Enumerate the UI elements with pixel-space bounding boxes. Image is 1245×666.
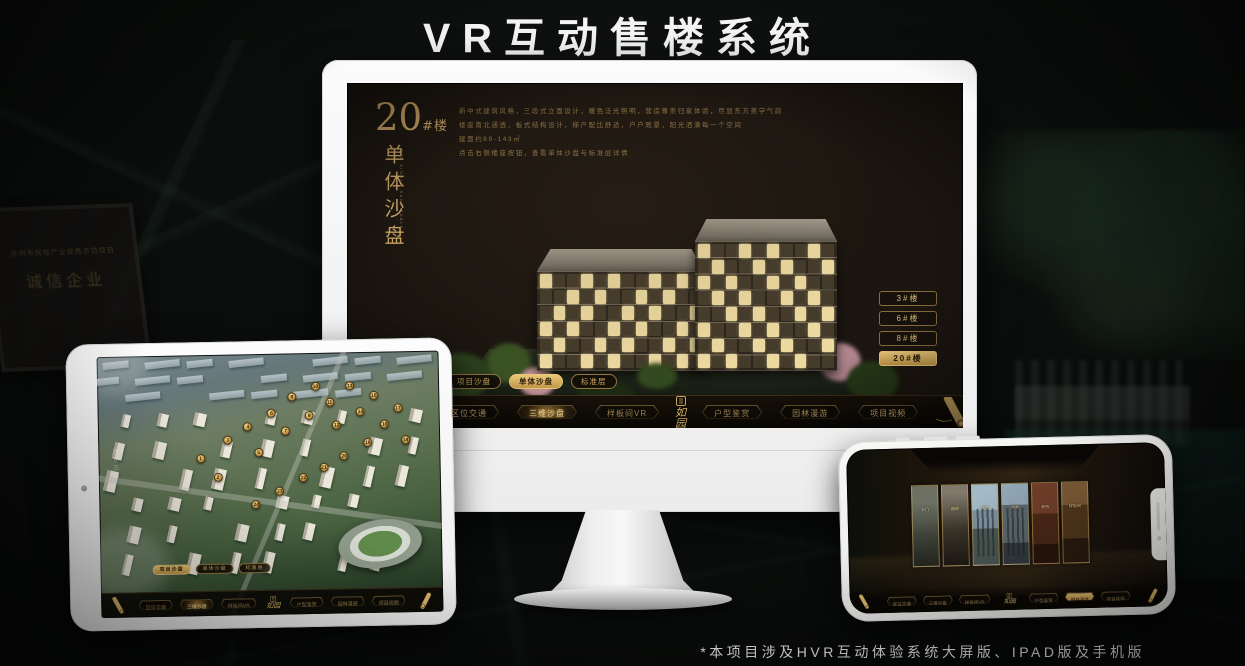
- stage: 苏州市房地产业优秀示范项目 诚信企业 VR互动售楼系统 20#楼 单体沙盘 TH…: [0, 0, 1245, 666]
- vignette-overlay: [0, 0, 1245, 666]
